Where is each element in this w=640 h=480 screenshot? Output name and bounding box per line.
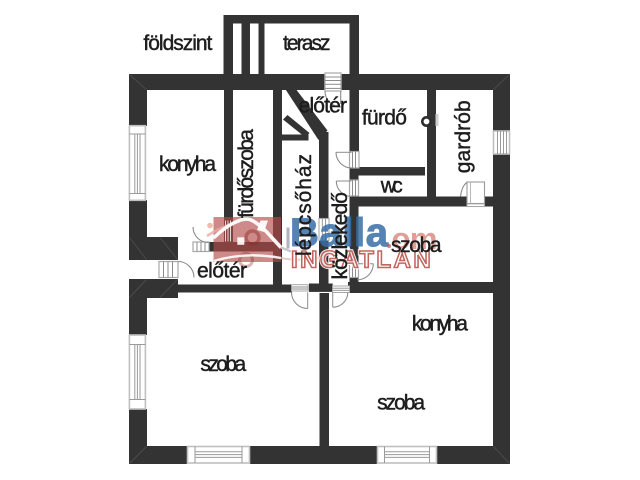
svg-text:közlekedő: közlekedő [329,192,352,280]
svg-text:wc: wc [380,175,403,198]
svg-text:előtér: előtér [197,260,247,283]
svg-text:konyha: konyha [412,313,468,336]
svg-text:terasz: terasz [283,32,331,55]
svg-text:gardrób: gardrób [452,100,475,173]
svg-text:fürdő: fürdő [362,107,407,130]
svg-text:szoba: szoba [200,353,246,376]
svg-text:szoba: szoba [377,392,425,415]
svg-text:szoba: szoba [391,234,442,257]
svg-text:fürdőszoba: fürdőszoba [235,129,258,218]
svg-text:előtér: előtér [299,95,347,118]
svg-text:földszint: földszint [143,32,212,55]
svg-text:konyha: konyha [159,153,216,176]
svg-text:lépcsőház: lépcsőház [293,154,316,256]
